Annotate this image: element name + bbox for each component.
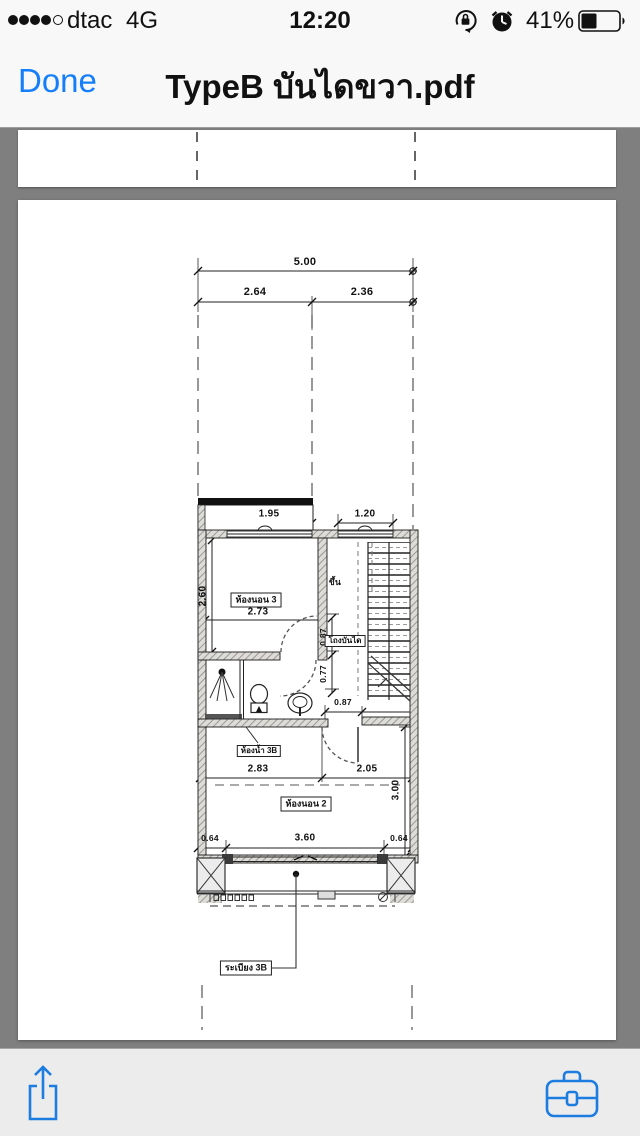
top-bars: dtac 4G 12:20 41% Done TypeB บันไดขวา.pd…: [0, 0, 640, 128]
toolbox-icon[interactable]: [544, 1069, 600, 1119]
signal-dot-icon: [8, 15, 18, 25]
alarm-clock-icon: [489, 8, 515, 34]
grid-line: [196, 132, 198, 184]
pdf-page-floor-plan[interactable]: 5.00 2.64 2.36 1.95 1.20 2.60 2.73 0.87 …: [18, 200, 616, 1040]
signal-dot-icon: [41, 15, 51, 25]
dim-total-width: 5.00: [294, 256, 317, 268]
pdf-viewer-screen: dtac 4G 12:20 41% Done TypeB บันไดขวา.pd…: [0, 0, 640, 1136]
room-label-stairhall: โถงบันได: [325, 635, 366, 647]
dim-pier-left: 0.64: [201, 833, 219, 843]
dim-pier-right: 0.64: [390, 833, 408, 843]
battery-percent-label: 41%: [526, 7, 574, 35]
carrier-label: dtac: [67, 7, 112, 35]
dim-window-left: 1.95: [259, 509, 280, 520]
orientation-lock-icon: [452, 7, 479, 34]
dim-window-right: 1.20: [355, 509, 376, 520]
dim-hall-lower: 0.77: [318, 665, 328, 683]
dim-top-left: 2.64: [244, 286, 267, 298]
pdf-page-previous-fragment[interactable]: [18, 130, 616, 187]
room-label-balcony: ระเบียง 3B: [220, 961, 272, 976]
room-label-bedroom2: ห้องนอน 2: [281, 797, 332, 812]
dim-bedroom3-depth: 2.60: [198, 586, 209, 607]
battery-icon: [578, 10, 626, 32]
document-title: TypeB บันไดขวา.pdf: [165, 60, 474, 113]
clock-label: 12:20: [289, 7, 350, 35]
dim-bath-width: 2.83: [248, 764, 269, 775]
done-button[interactable]: Done: [18, 62, 97, 100]
signal-dot-icon: [30, 15, 40, 25]
grid-line: [414, 132, 416, 184]
dim-hall-door: 0.87: [334, 697, 352, 707]
signal-dot-empty-icon: [53, 15, 63, 25]
stair-up-label: ขึ้น: [329, 575, 341, 589]
dim-bedroom2-depth: 3.00: [391, 780, 402, 801]
dim-hall-width: 2.05: [357, 764, 378, 775]
dim-bedroom3-width: 2.73: [248, 607, 269, 618]
signal-dot-icon: [19, 15, 29, 25]
dim-door-span: 3.60: [295, 833, 316, 844]
network-label: 4G: [126, 7, 158, 35]
dim-top-right: 2.36: [351, 286, 374, 298]
share-icon[interactable]: [26, 1063, 60, 1123]
room-label-bathroom: ห้องน้ำ 3B: [237, 745, 281, 757]
bottom-toolbar: [0, 1048, 640, 1136]
room-label-bedroom3: ห้องนอน 3: [231, 593, 282, 608]
floor-plan-drawing: [18, 200, 616, 1040]
